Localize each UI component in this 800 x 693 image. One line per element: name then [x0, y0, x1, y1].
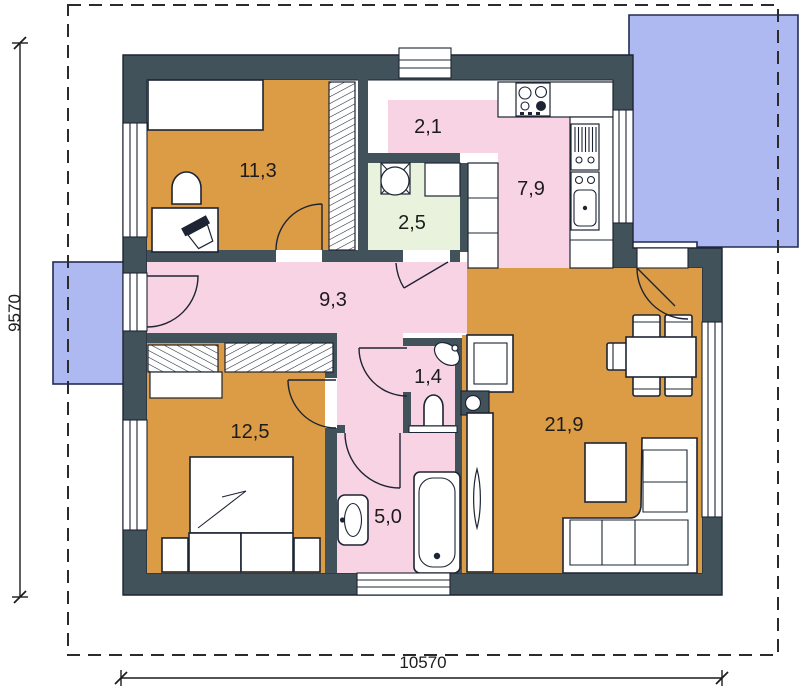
tall-cabinet-icon	[467, 413, 493, 572]
mattress	[189, 533, 241, 572]
water-heater-icon	[461, 391, 489, 415]
dining-table-icon	[626, 337, 696, 377]
washbasin-icon	[338, 495, 368, 545]
window-bedroom-1	[123, 123, 147, 237]
room-label-bedroom-2: 12,5	[231, 421, 270, 443]
washing-machine-icon	[381, 163, 410, 195]
terrace-left	[53, 262, 130, 384]
room-label-kitchen: 7,9	[517, 178, 545, 200]
armchair-icon	[172, 172, 201, 204]
wardrobe-icon	[329, 82, 355, 250]
room-label-bathroom: 5,0	[374, 506, 402, 528]
room-label-bedroom-1: 11,3	[239, 160, 276, 182]
room-label-hallway: 9,3	[319, 289, 347, 311]
dimension-horizontal: 10570	[115, 653, 728, 686]
dimension-height-value: 9570	[5, 294, 24, 332]
room-hallway	[147, 262, 467, 333]
mattress	[241, 533, 293, 572]
toilet-icon	[424, 395, 443, 426]
floor-plan-svg: 11,3 2,1 2,5 7,9 9,3 1,4 12,5 21,9 5,0 9…	[0, 0, 800, 693]
cooktop-icon	[516, 83, 550, 116]
window-bedroom-2	[123, 420, 147, 530]
bed-icon	[148, 80, 263, 130]
room-label-wc: 1,4	[414, 366, 442, 388]
nightstand	[162, 538, 188, 572]
shelf	[150, 372, 222, 398]
counter	[425, 163, 460, 196]
cistern	[409, 426, 457, 433]
terrace-top-right	[629, 15, 798, 247]
window-living-room	[702, 322, 722, 517]
dimension-width-value: 10570	[399, 653, 446, 672]
floor-plan-page: 11,3 2,1 2,5 7,9 9,3 1,4 12,5 21,9 5,0 9…	[0, 0, 800, 693]
bathtub-icon	[414, 472, 460, 573]
window-kitchen	[613, 110, 633, 223]
room-entry	[388, 100, 498, 153]
dish-rack-icon	[571, 124, 599, 170]
room-label-living-dining: 21,9	[545, 414, 584, 436]
window-bathroom	[357, 573, 450, 595]
kitchen-sink-icon	[571, 172, 599, 230]
coffee-table-icon	[585, 443, 626, 502]
room-label-entry: 2,1	[414, 116, 442, 138]
entrance-door	[399, 48, 451, 78]
chair-icon	[607, 343, 627, 370]
dimension-vertical: 9570	[5, 37, 28, 603]
room-label-utility: 2,5	[398, 212, 426, 234]
tv-cabinet-icon	[467, 335, 513, 392]
nightstand	[294, 538, 320, 572]
